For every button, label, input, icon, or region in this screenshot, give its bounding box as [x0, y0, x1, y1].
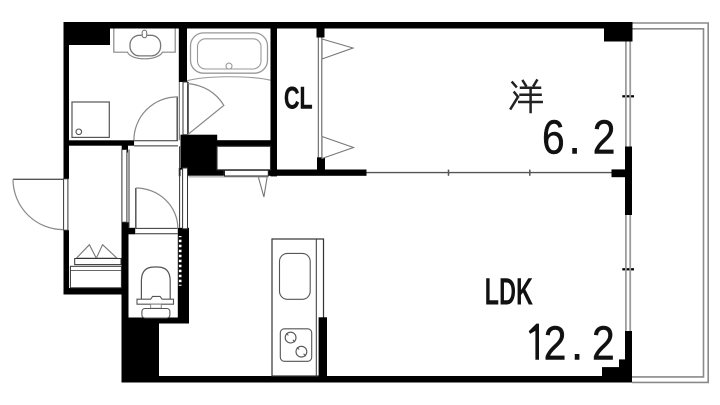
svg-text:2: 2: [593, 110, 616, 164]
svg-text:.: .: [571, 316, 583, 371]
svg-text:2: 2: [592, 316, 615, 370]
svg-text:2: 2: [544, 316, 567, 370]
svg-text:6: 6: [542, 110, 565, 164]
svg-text:.: .: [569, 109, 581, 164]
svg-text:CL: CL: [284, 81, 313, 116]
svg-text:LDK: LDK: [485, 270, 534, 313]
